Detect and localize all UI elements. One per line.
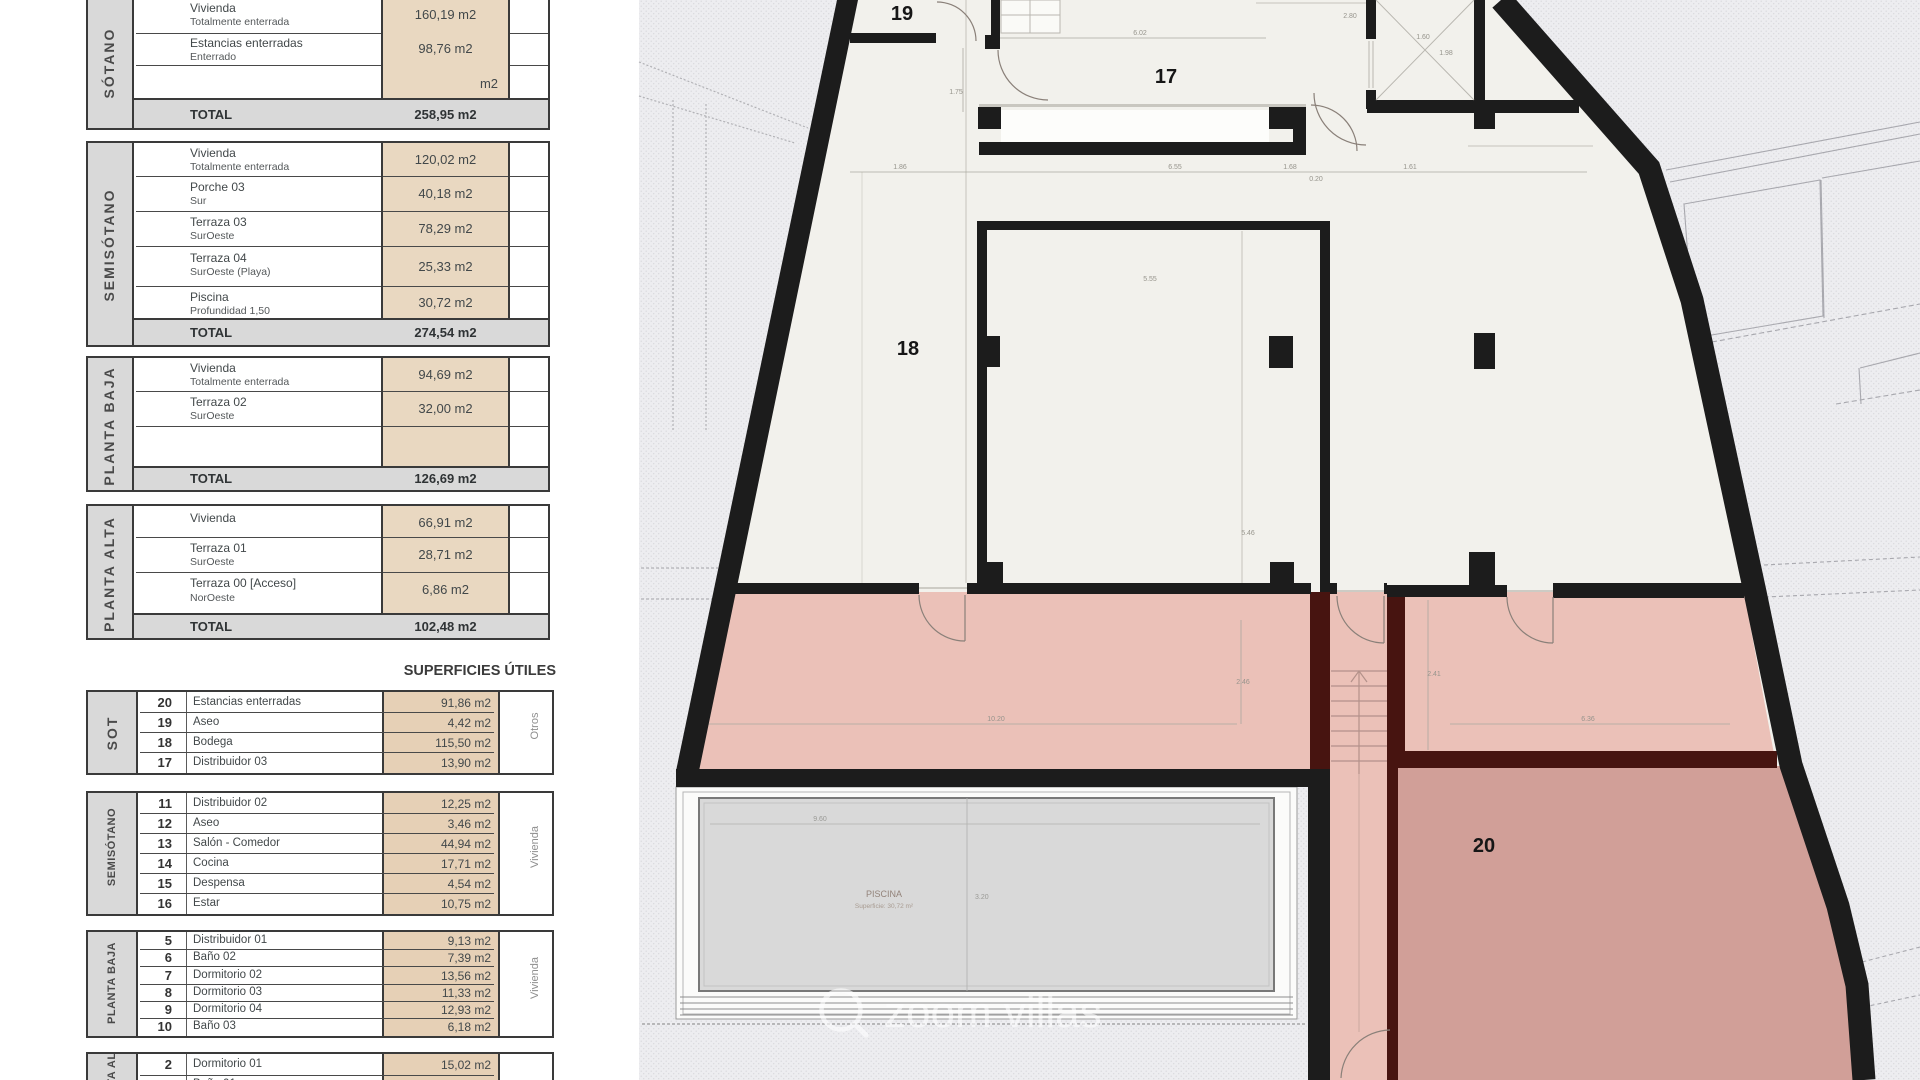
svg-text:0.20: 0.20 [1309,176,1323,183]
svg-text:1.68: 1.68 [1283,164,1297,171]
svg-text:9.60: 9.60 [813,816,827,823]
svg-text:1.60: 1.60 [1416,34,1430,41]
svg-text:1.61: 1.61 [1403,164,1417,171]
svg-text:18: 18 [897,338,919,360]
svg-text:PISCINA: PISCINA [866,889,902,899]
svg-text:20: 20 [1473,835,1495,857]
svg-text:17: 17 [1155,66,1177,88]
svg-text:1.75: 1.75 [949,89,963,96]
svg-text:6.02: 6.02 [1133,30,1147,37]
svg-text:6.55: 6.55 [1168,164,1182,171]
svg-text:2.46: 2.46 [1236,679,1250,686]
svg-text:10.20: 10.20 [987,716,1005,723]
svg-text:5.55: 5.55 [1143,276,1157,283]
svg-text:19: 19 [891,3,913,25]
svg-text:6.36: 6.36 [1581,716,1595,723]
svg-text:Superficie: 30,72 m²: Superficie: 30,72 m² [855,903,914,910]
svg-text:2.80: 2.80 [1343,13,1357,20]
svg-text:1.98: 1.98 [1439,50,1453,57]
svg-text:1.86: 1.86 [893,164,907,171]
svg-text:5.46: 5.46 [1241,530,1255,537]
svg-text:3.20: 3.20 [975,894,989,901]
svg-text:zoom villas: zoom villas [884,988,1102,1037]
svg-text:2.41: 2.41 [1427,671,1441,678]
